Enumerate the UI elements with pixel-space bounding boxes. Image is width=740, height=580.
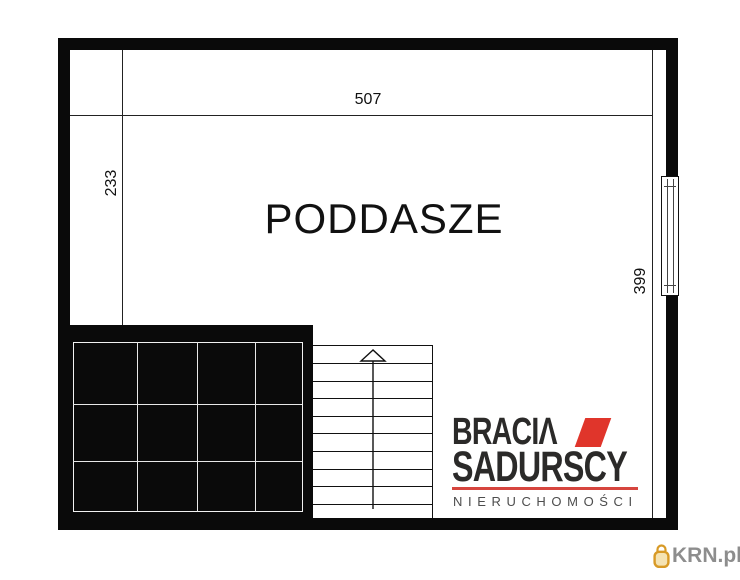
stair-tread <box>313 433 432 434</box>
void-grid-line <box>73 461 302 462</box>
room-label: PODDASZE <box>254 195 514 243</box>
stair-tread <box>313 486 432 487</box>
padlock-icon <box>653 543 670 568</box>
window-frame-tick <box>664 186 676 187</box>
dimension-label-right-height: 399 <box>625 263 657 299</box>
void-grid-block <box>58 325 313 530</box>
void-grid-line <box>73 404 302 405</box>
right-wall-window <box>661 176 679 296</box>
stair-tread <box>313 381 432 382</box>
stair-tread <box>313 416 432 417</box>
dimension-label-width: 507 <box>330 91 406 109</box>
stair-tread <box>313 451 432 452</box>
dimension-label-left-height: 233 <box>96 165 128 201</box>
logo-red-rule <box>452 487 638 490</box>
krn-watermark: KRN.pl <box>653 543 740 568</box>
void-grid-line <box>255 342 256 512</box>
void-grid-line <box>197 342 198 512</box>
void-grid-line <box>137 342 138 512</box>
floor-plan: 507 233 399 PODDASZE BRACIΛ SADURSCY NIE… <box>0 0 740 580</box>
logo-brand-line2: SADURSCY <box>452 450 627 484</box>
dimension-line-top <box>70 115 653 116</box>
window-glazing <box>667 179 674 293</box>
stair-tread <box>313 469 432 470</box>
logo-tagline: NIERUCHOMOŚCI <box>453 494 638 509</box>
void-grid-inset-border <box>73 342 303 512</box>
krn-watermark-text: KRN.pl <box>672 543 740 568</box>
stair-tread <box>313 363 432 364</box>
stair-tread <box>313 504 432 505</box>
stair-tread <box>313 398 432 399</box>
stairs <box>313 345 433 518</box>
window-frame-tick <box>664 285 676 286</box>
